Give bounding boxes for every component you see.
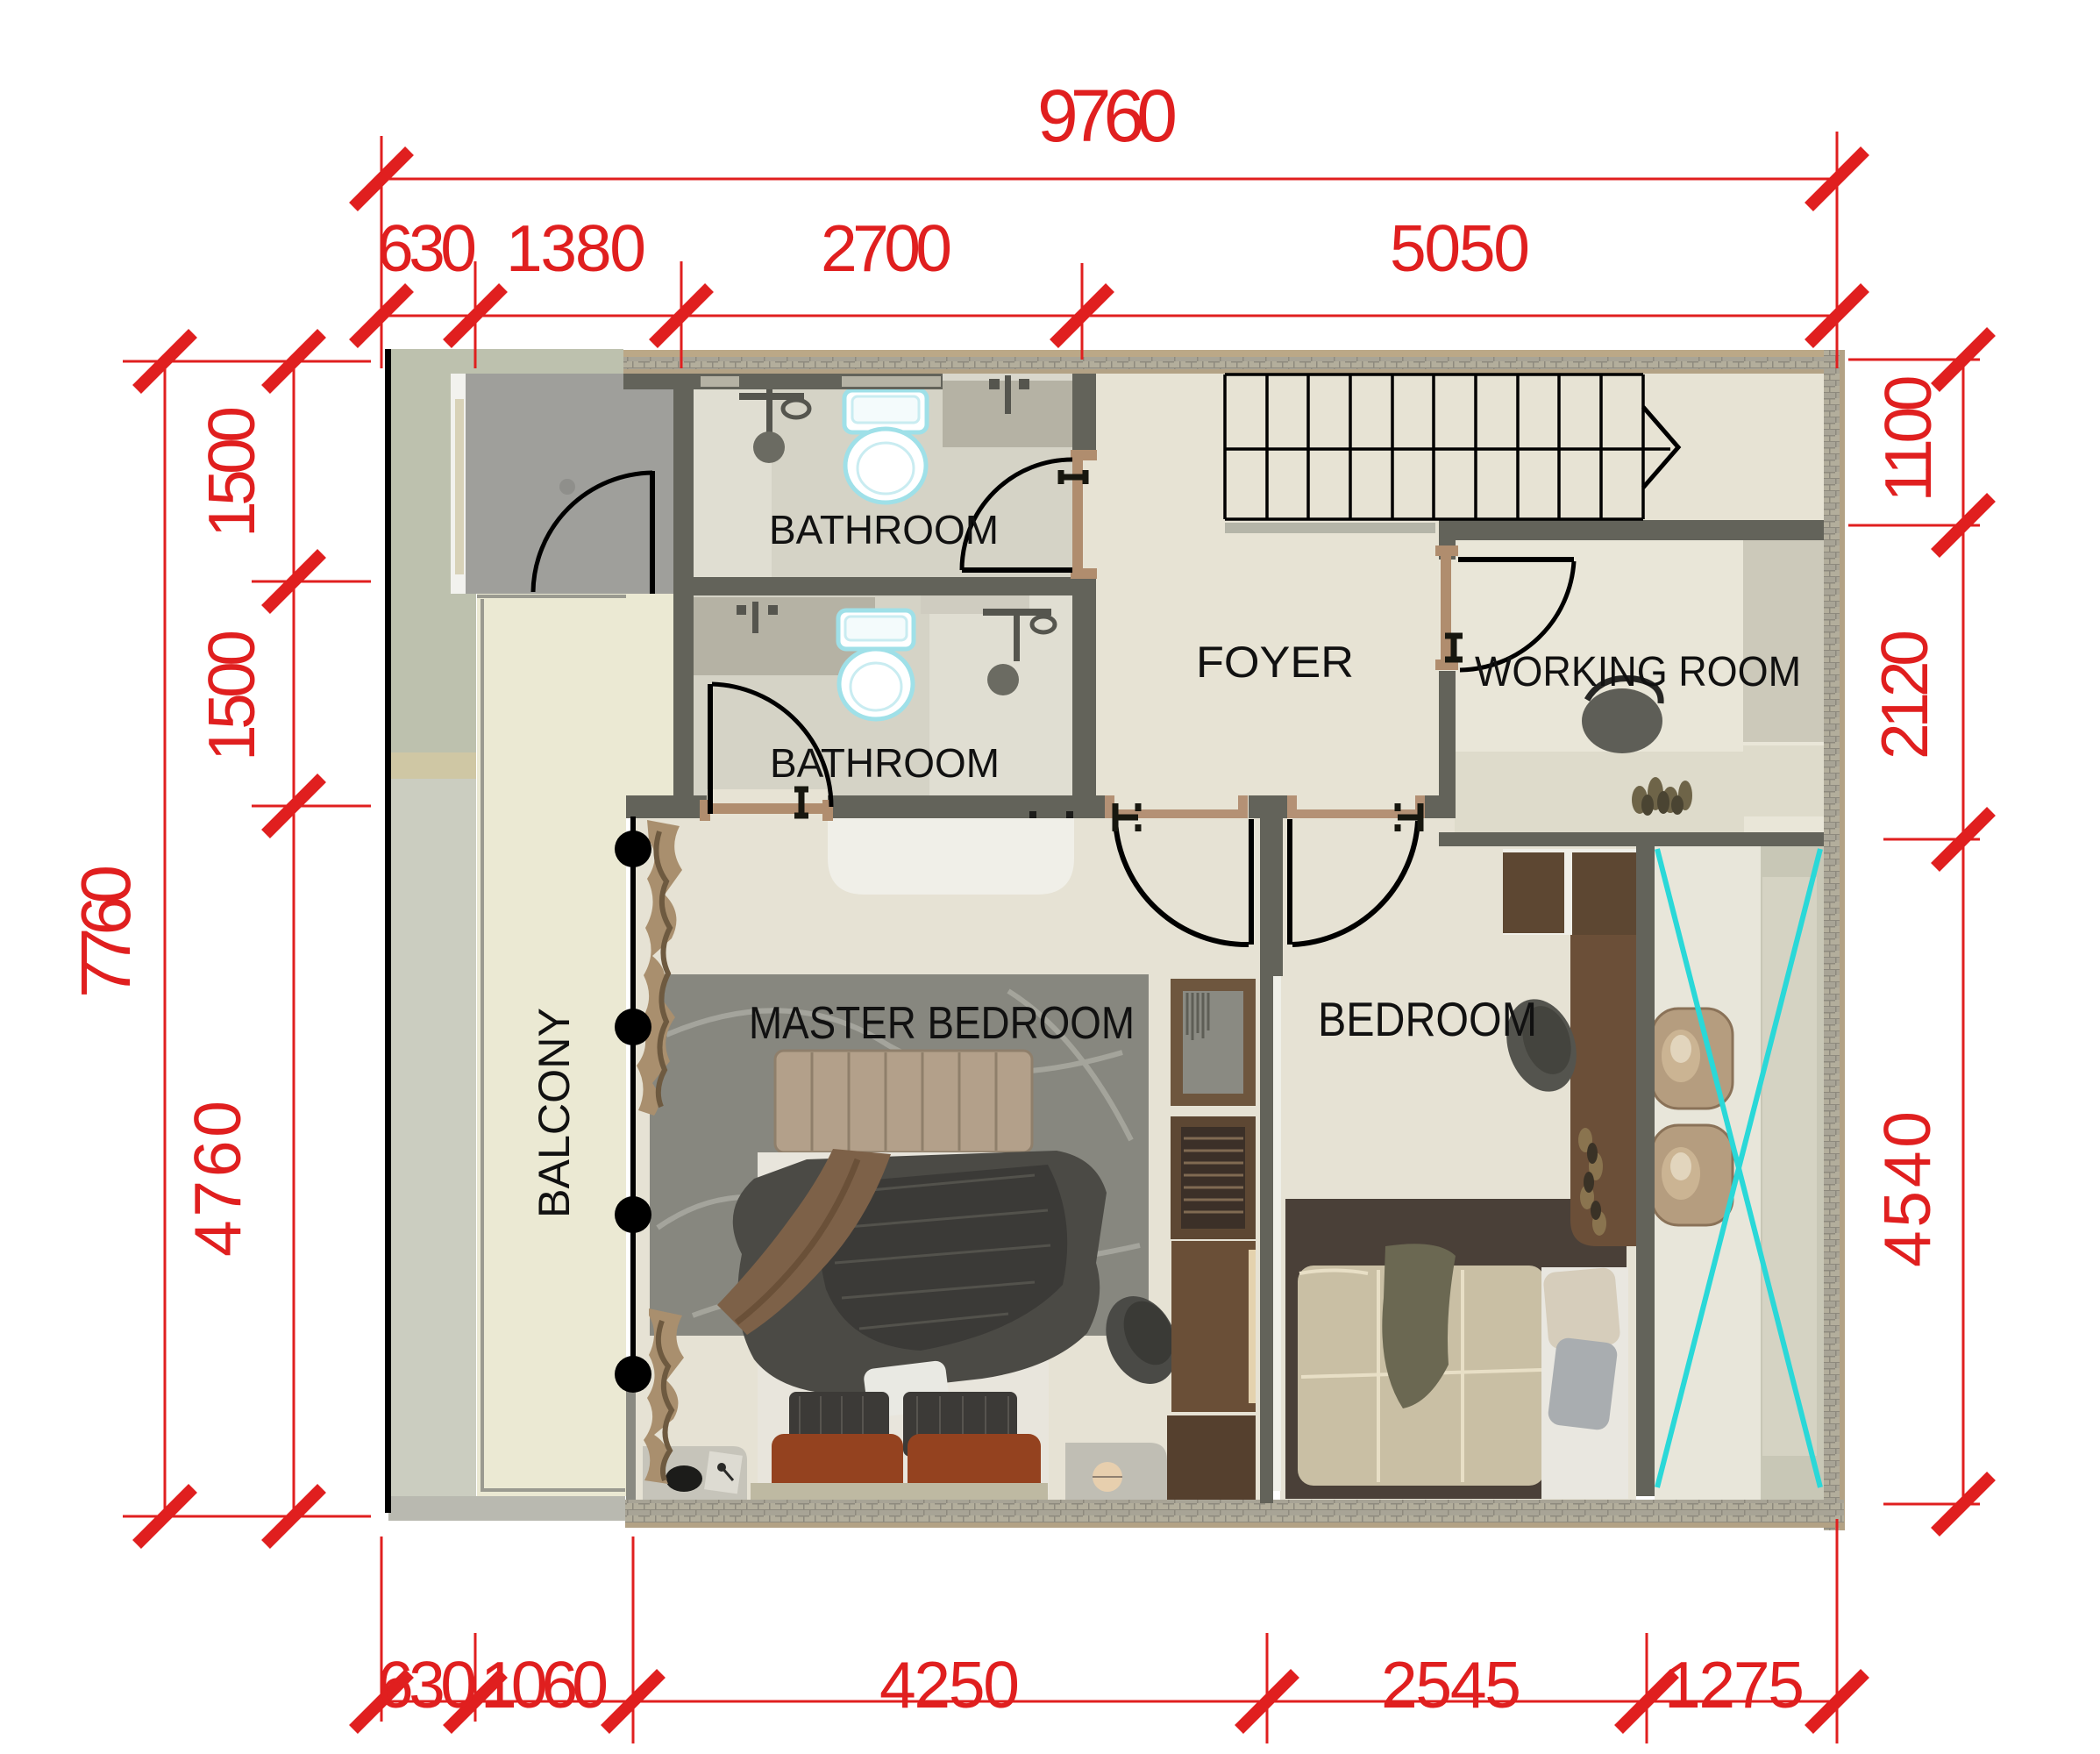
svg-text:2545: 2545: [1381, 1648, 1521, 1722]
svg-text:BEDROOM: BEDROOM: [1318, 992, 1537, 1046]
svg-text:1100: 1100: [1871, 375, 1945, 503]
svg-text:4250: 4250: [879, 1648, 1020, 1722]
svg-text:7760: 7760: [67, 865, 145, 998]
svg-text:FOYER: FOYER: [1196, 638, 1354, 687]
svg-text:1275: 1275: [1664, 1648, 1805, 1722]
svg-text:1380: 1380: [506, 211, 646, 285]
svg-text:BALCONY: BALCONY: [530, 1008, 579, 1218]
svg-text:630: 630: [377, 211, 477, 285]
svg-text:2700: 2700: [821, 211, 952, 285]
svg-text:1500: 1500: [195, 406, 268, 538]
svg-text:BATHROOM: BATHROOM: [770, 740, 1000, 786]
svg-text:BATHROOM: BATHROOM: [769, 507, 999, 553]
svg-text:9760: 9760: [1037, 75, 1178, 157]
svg-text:1500: 1500: [195, 630, 268, 761]
svg-text:WORKING ROOM: WORKING ROOM: [1475, 649, 1801, 695]
svg-text:2120: 2120: [1868, 630, 1941, 759]
svg-text:630: 630: [377, 1648, 477, 1722]
svg-text:MASTER BEDROOM: MASTER BEDROOM: [749, 998, 1135, 1049]
svg-text:1060: 1060: [481, 1648, 609, 1722]
svg-text:5050: 5050: [1390, 211, 1530, 285]
